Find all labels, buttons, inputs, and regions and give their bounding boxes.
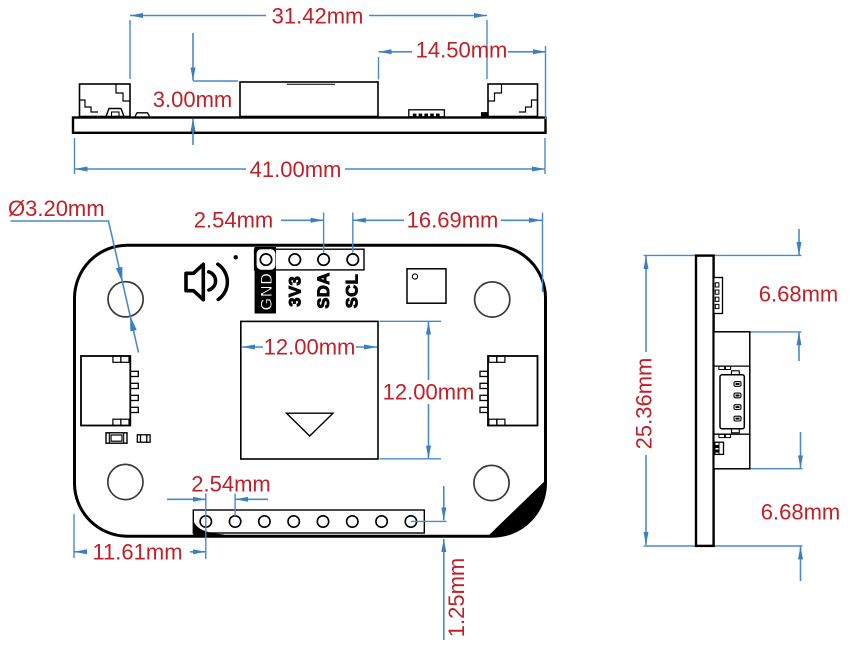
svg-text:SCL: SCL <box>344 274 362 309</box>
svg-text:12.00mm: 12.00mm <box>264 335 356 360</box>
svg-text:11.61mm: 11.61mm <box>92 540 182 565</box>
svg-text:12.00mm: 12.00mm <box>383 380 475 405</box>
svg-text:GND: GND <box>258 272 276 310</box>
svg-text:41.00mm: 41.00mm <box>250 157 342 182</box>
svg-text:3V3: 3V3 <box>287 276 305 307</box>
svg-text:2.54mm: 2.54mm <box>194 208 273 233</box>
svg-text:6.68mm: 6.68mm <box>759 282 838 307</box>
svg-text:SDA: SDA <box>315 272 333 308</box>
svg-text:1.25mm: 1.25mm <box>444 558 469 637</box>
svg-text:6.68mm: 6.68mm <box>761 500 840 525</box>
svg-text:Ø3.20mm: Ø3.20mm <box>8 196 105 221</box>
svg-text:31.42mm: 31.42mm <box>272 4 364 29</box>
svg-text:16.69mm: 16.69mm <box>407 208 499 233</box>
svg-text:3.00mm: 3.00mm <box>153 87 232 112</box>
svg-text:25.36mm: 25.36mm <box>631 358 656 450</box>
svg-text:14.50mm: 14.50mm <box>416 38 508 63</box>
svg-text:2.54mm: 2.54mm <box>191 472 270 497</box>
